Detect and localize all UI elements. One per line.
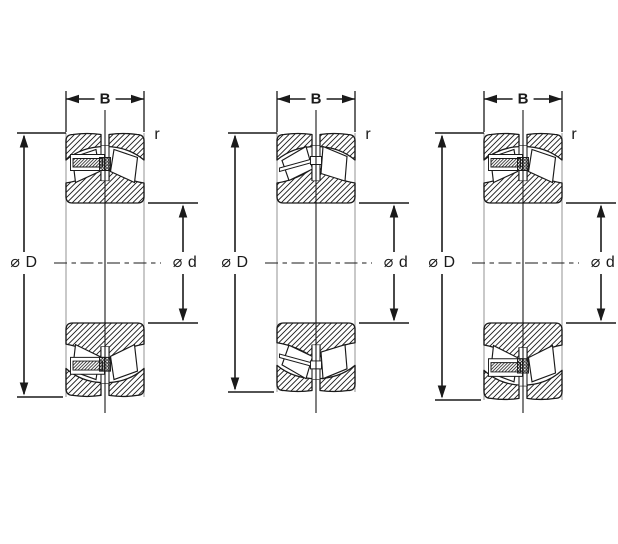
arrowhead <box>231 378 240 391</box>
corner-radius-label: r <box>152 127 161 143</box>
guide-ring <box>73 159 103 168</box>
guide-ring <box>73 361 103 370</box>
bore-diameter-label: ⌀ d <box>589 252 617 274</box>
bearing-diagram <box>0 0 618 544</box>
arrowhead <box>597 205 606 218</box>
guide-ring <box>491 159 521 168</box>
arrowhead <box>438 135 447 148</box>
bore-diameter-label: ⌀ d <box>171 252 199 274</box>
arrowhead <box>66 95 79 104</box>
arrowhead <box>438 386 447 399</box>
arrowhead <box>179 205 188 218</box>
outer-diameter-label: ⌀ D <box>219 252 250 274</box>
guide-ring <box>491 363 521 372</box>
width-label: B <box>306 91 327 108</box>
width-label: B <box>513 91 534 108</box>
bore-diameter-label: ⌀ d <box>382 252 410 274</box>
arrowhead <box>231 135 240 148</box>
arrowhead <box>597 309 606 322</box>
arrowhead <box>179 309 188 322</box>
arrowhead <box>20 383 29 396</box>
corner-radius-label: r <box>363 127 372 143</box>
arrowhead <box>484 95 497 104</box>
width-label: B <box>95 91 116 108</box>
outer-diameter-label: ⌀ D <box>426 252 457 274</box>
arrowhead <box>390 205 399 218</box>
arrowhead <box>277 95 290 104</box>
arrowhead <box>20 135 29 148</box>
corner-radius-label: r <box>569 127 578 143</box>
arrowhead <box>549 95 562 104</box>
arrowhead <box>390 309 399 322</box>
arrowhead <box>131 95 144 104</box>
outer-diameter-label: ⌀ D <box>8 252 39 274</box>
arrowhead <box>342 95 355 104</box>
bearing-drawing-canvas: B r ⌀ D ⌀ d B r ⌀ D ⌀ d B r ⌀ D ⌀ d <box>0 0 618 544</box>
